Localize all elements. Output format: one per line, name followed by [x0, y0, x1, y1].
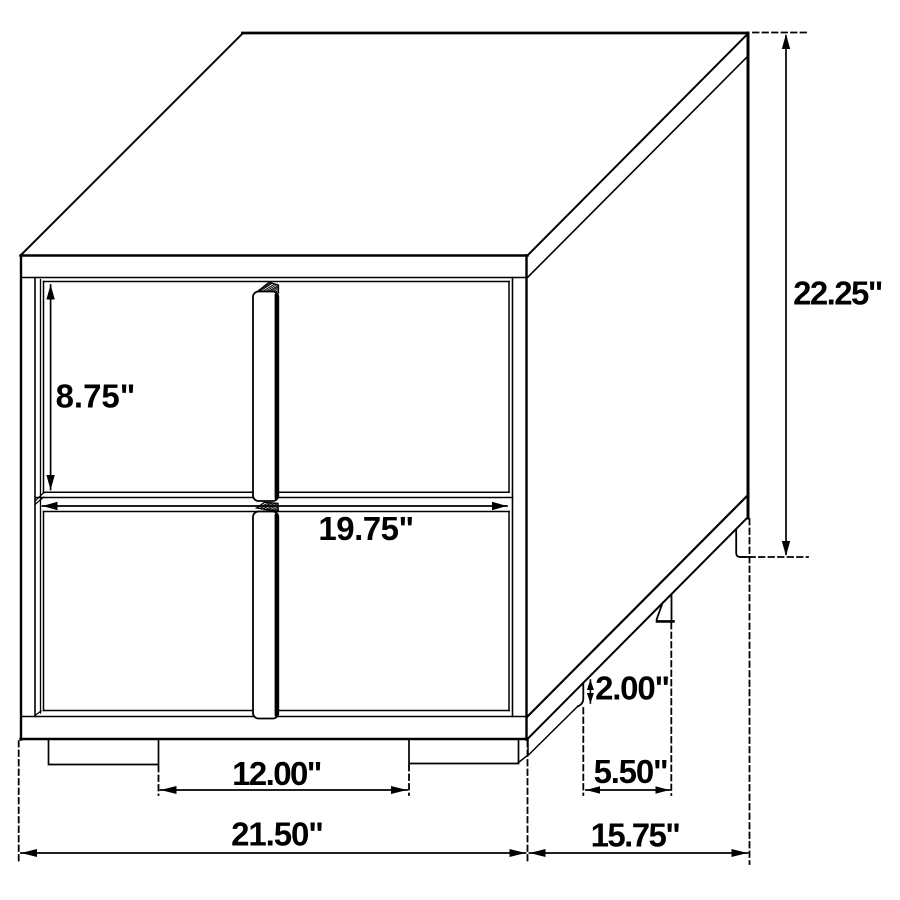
svg-text:8.75": 8.75": [56, 378, 136, 415]
svg-text:21.50": 21.50": [231, 816, 323, 853]
svg-text:19.75": 19.75": [318, 510, 413, 547]
svg-text:2.00": 2.00": [595, 670, 669, 707]
svg-text:22.25": 22.25": [793, 275, 882, 312]
svg-text:12.00": 12.00": [232, 755, 321, 792]
svg-text:15.75": 15.75": [591, 817, 680, 854]
svg-text:5.50": 5.50": [594, 753, 668, 790]
